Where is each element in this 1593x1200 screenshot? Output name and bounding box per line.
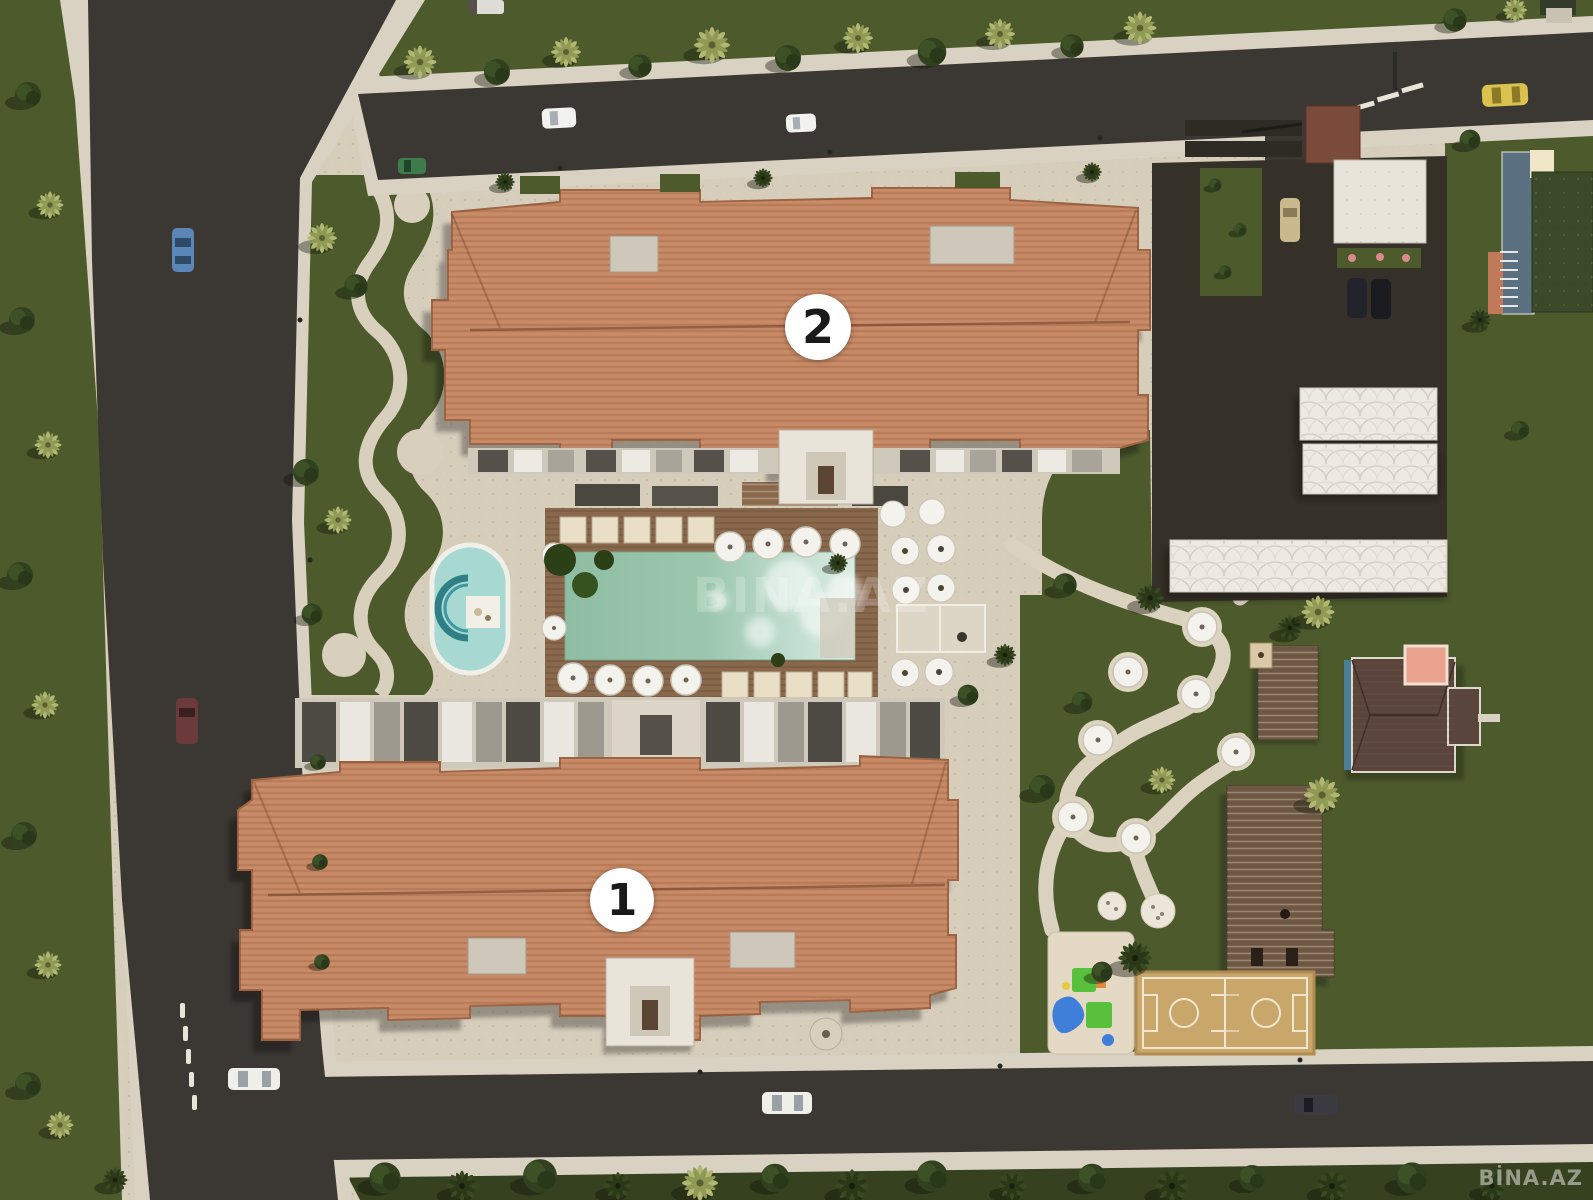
car (398, 158, 426, 174)
bleachers (1500, 252, 1518, 306)
roof-terrace (610, 236, 658, 272)
car (1347, 278, 1367, 318)
playground (1048, 932, 1134, 1054)
building-1-marker[interactable]: 1 (590, 868, 654, 932)
truck (468, 0, 504, 14)
site-plan-scene (0, 0, 1593, 1200)
car (762, 1092, 812, 1114)
roof-terrace (930, 226, 1014, 264)
roof-terrace (730, 932, 795, 968)
gatehouse (1306, 106, 1360, 163)
building-1-entrance (606, 958, 694, 1046)
car (172, 228, 194, 272)
car (786, 113, 817, 133)
pergola (1220, 786, 1334, 986)
entrance-fence (1185, 120, 1302, 136)
roof-terrace (468, 938, 526, 974)
parking-area (1152, 105, 1447, 602)
signal-pole (1393, 52, 1397, 90)
pergola (1250, 643, 1318, 744)
clubhouse-terrace (1405, 646, 1447, 684)
building-2-entrance (779, 430, 873, 504)
building-2-marker[interactable]: 2 (785, 294, 851, 360)
road-bottom (313, 1061, 1593, 1160)
site-plan-canvas: 2 1 BINA.AZ BİNA.AZ (0, 0, 1593, 1200)
basketball-court (1136, 972, 1314, 1054)
kids-pool (432, 545, 508, 673)
car (1481, 83, 1528, 107)
car (176, 698, 198, 744)
car (1280, 198, 1300, 242)
car (1371, 279, 1391, 319)
car (1294, 1095, 1338, 1115)
car (541, 107, 576, 129)
car (228, 1068, 280, 1090)
building-1 (229, 698, 958, 1054)
